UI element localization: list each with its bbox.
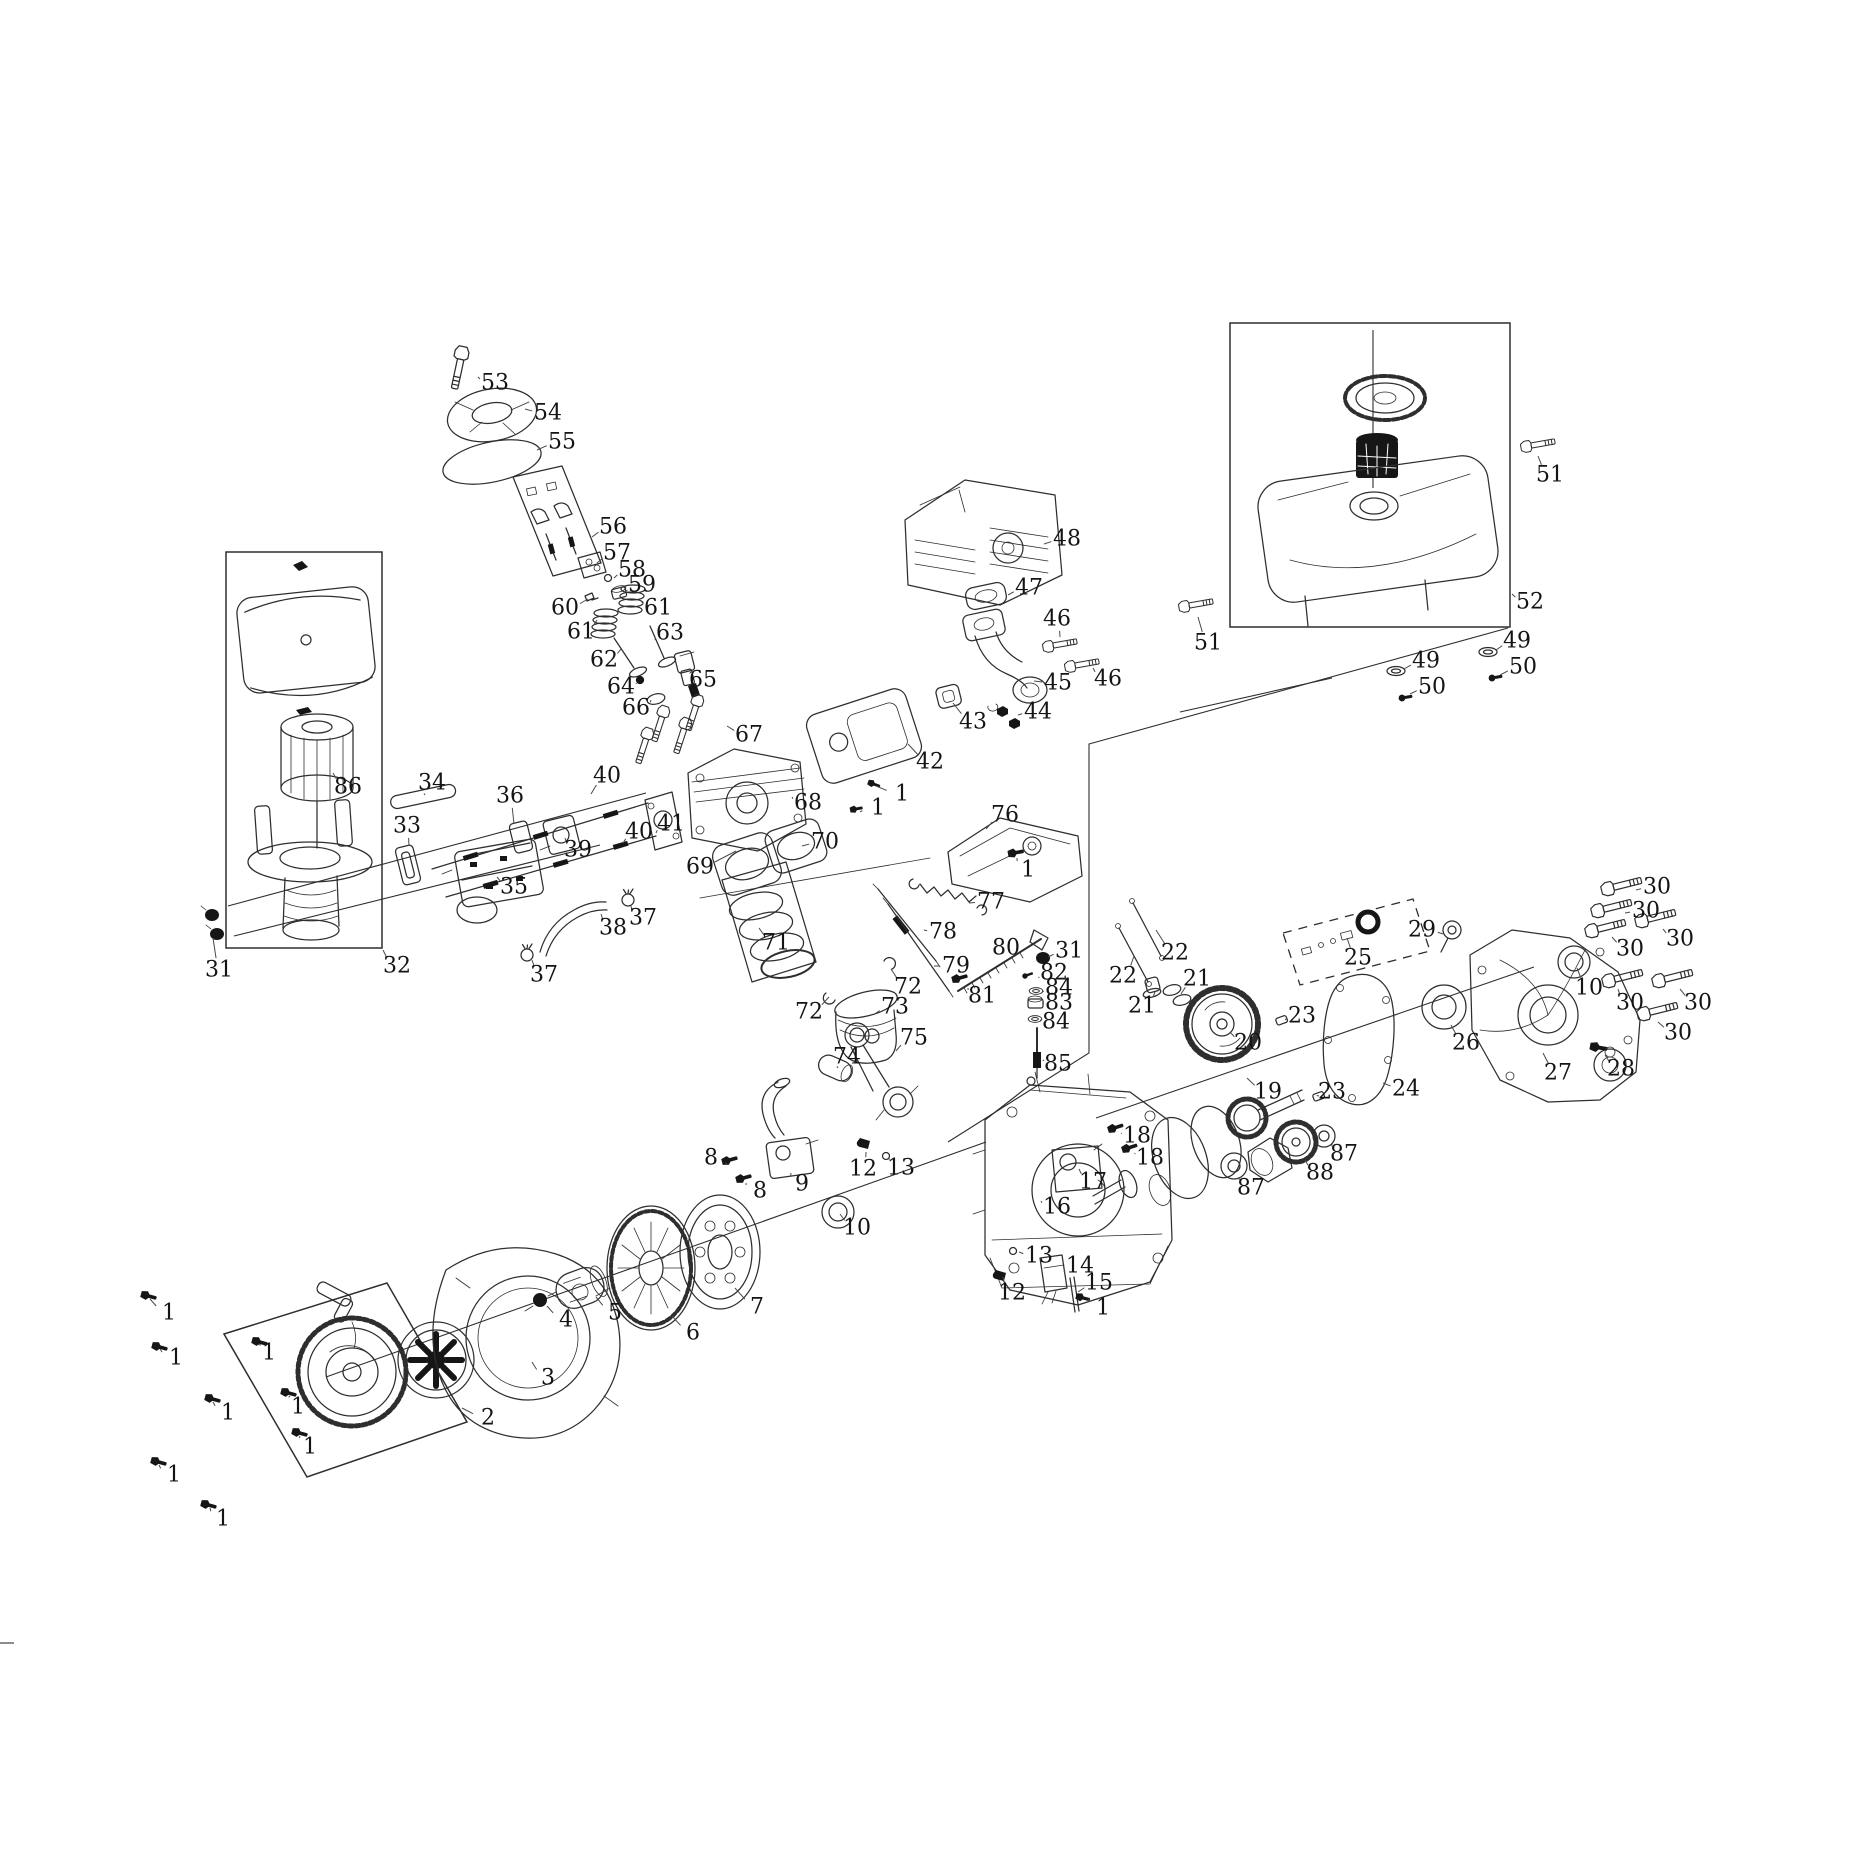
leader-line-70 xyxy=(802,844,809,846)
carb-gasket-33 xyxy=(395,844,422,885)
leader-line-66 xyxy=(650,700,651,702)
bolt-18 xyxy=(1107,1121,1125,1135)
screw-82 xyxy=(1022,971,1034,980)
part-number-33: 33 xyxy=(393,814,421,839)
leader-line-52 xyxy=(1512,594,1515,597)
part-number-7: 7 xyxy=(750,1295,764,1320)
leader-line-6 xyxy=(672,1316,681,1325)
bolt-1 xyxy=(204,1393,222,1406)
leader-line-1 xyxy=(159,1465,161,1468)
part-number-25: 25 xyxy=(1344,946,1372,971)
oil-dipstick-29 xyxy=(1441,921,1461,952)
part-number-31: 31 xyxy=(205,958,233,983)
part-number-13: 13 xyxy=(887,1156,915,1181)
part-number-1: 1 xyxy=(1096,1296,1110,1321)
carb-gasket-36 xyxy=(509,820,534,853)
part-number-75: 75 xyxy=(900,1026,928,1051)
part-number-10: 10 xyxy=(1575,976,1603,1001)
part-number-72: 72 xyxy=(795,1000,823,1025)
leader-line-44 xyxy=(1018,714,1022,715)
washer-84 xyxy=(1028,1016,1042,1023)
part-number-38: 38 xyxy=(599,916,627,941)
part-number-87: 87 xyxy=(1237,1176,1265,1201)
part-number-1: 1 xyxy=(169,1346,183,1371)
cover-bolt-30 xyxy=(1600,874,1643,897)
part-number-59: 59 xyxy=(628,573,656,598)
woodruff-key-23 xyxy=(1275,1015,1288,1025)
part-number-37: 37 xyxy=(530,963,558,988)
part-number-30: 30 xyxy=(1666,927,1694,952)
part-number-32: 32 xyxy=(383,954,411,979)
leader-line-18 xyxy=(1121,1133,1122,1134)
part-number-66: 66 xyxy=(622,696,650,721)
fuel-tank-52 xyxy=(1255,452,1502,626)
leader-line-30 xyxy=(1636,889,1641,890)
grommet-icon xyxy=(201,906,224,940)
bolt-1 xyxy=(849,804,863,813)
leader-line-56 xyxy=(592,532,599,537)
part-number-30: 30 xyxy=(1616,937,1644,962)
part-number-54: 54 xyxy=(534,401,562,426)
recoil-reel-2 xyxy=(298,1318,406,1426)
part-number-23: 23 xyxy=(1288,1004,1316,1029)
part-number-1: 1 xyxy=(871,796,885,821)
leader-line-23 xyxy=(1285,1019,1286,1020)
fuel-filter-screen xyxy=(1356,433,1398,478)
part-number-42: 42 xyxy=(916,750,944,775)
leader-line-69 xyxy=(715,851,736,862)
leader-line-49 xyxy=(1404,665,1411,669)
part-number-1: 1 xyxy=(262,1341,276,1366)
part-number-6: 6 xyxy=(686,1321,700,1346)
starter-clutch-4 xyxy=(525,1292,556,1311)
part-number-62: 62 xyxy=(590,648,618,673)
part-number-78: 78 xyxy=(929,920,957,945)
piston-pin-clip-72 xyxy=(884,958,895,969)
air-cleaner-base xyxy=(248,799,372,940)
part-number-39: 39 xyxy=(564,838,592,863)
part-number-47: 47 xyxy=(1015,576,1043,601)
leader-line-50 xyxy=(1410,691,1417,694)
part-number-1: 1 xyxy=(162,1301,176,1326)
part-number-87: 87 xyxy=(1330,1142,1358,1167)
part-number-49: 49 xyxy=(1503,629,1531,654)
tank-bolt-51 xyxy=(1520,436,1556,453)
leader-lines xyxy=(150,377,1685,1511)
part-number-22: 22 xyxy=(1109,964,1137,989)
part-number-48: 48 xyxy=(1053,527,1081,552)
part-number-1: 1 xyxy=(221,1401,235,1426)
part-number-84: 84 xyxy=(1042,1010,1070,1035)
bushing-83 xyxy=(1028,996,1043,1008)
fuel-tank-group xyxy=(1178,376,1556,702)
bolt-8 xyxy=(721,1154,739,1167)
leader-line-49 xyxy=(1496,646,1502,650)
part-number-53: 53 xyxy=(481,371,509,396)
exhaust-gasket-43 xyxy=(935,683,962,709)
cover-gasket-55 xyxy=(439,432,545,492)
part-number-8: 8 xyxy=(704,1146,718,1171)
part-number-77: 77 xyxy=(977,890,1005,915)
cover-bolt-30 xyxy=(1584,916,1627,939)
leader-line-30 xyxy=(1625,912,1630,913)
part-number-81: 81 xyxy=(968,984,996,1009)
part-number-12: 12 xyxy=(998,1281,1026,1306)
part-number-2: 2 xyxy=(481,1406,495,1431)
leader-line-78 xyxy=(924,930,927,931)
washer-84 xyxy=(1029,988,1043,995)
part-number-45: 45 xyxy=(1044,671,1072,696)
part-number-18: 18 xyxy=(1136,1146,1164,1171)
breather-hose-9 xyxy=(762,1077,818,1179)
part-number-76: 76 xyxy=(991,803,1019,828)
tank-washer-49 xyxy=(1479,648,1497,657)
leader-line-50 xyxy=(1500,671,1508,675)
leader-line-16 xyxy=(1041,1201,1042,1203)
part-number-74: 74 xyxy=(833,1045,861,1070)
part-number-27: 27 xyxy=(1544,1061,1572,1086)
oil-seal-10 xyxy=(1558,946,1590,978)
part-number-21: 21 xyxy=(1183,967,1211,992)
part-number-1: 1 xyxy=(1021,858,1035,883)
piston-pin-clip-72 xyxy=(823,993,835,1004)
fuel-cap xyxy=(1345,376,1425,420)
diagram-page: 5354555657585960616162636465666768697071… xyxy=(0,0,1875,1875)
part-number-24: 24 xyxy=(1392,1077,1420,1102)
part-number-40: 40 xyxy=(625,820,653,845)
tank-washer-49 xyxy=(1387,667,1405,676)
part-number-1: 1 xyxy=(216,1507,230,1532)
hose-clamp-37 xyxy=(521,944,533,961)
leader-line-1 xyxy=(210,1508,211,1511)
air-cleaner-assembly xyxy=(201,561,377,940)
part-number-30: 30 xyxy=(1616,991,1644,1016)
part-number-50: 50 xyxy=(1418,675,1446,700)
part-number-43: 43 xyxy=(959,710,987,735)
part-number-35: 35 xyxy=(500,875,528,900)
leader-line-54 xyxy=(525,409,532,411)
part-number-28: 28 xyxy=(1607,1057,1635,1082)
leader-line-1 xyxy=(213,1402,215,1406)
leader-line-29 xyxy=(1438,932,1443,934)
part-number-31: 31 xyxy=(1055,939,1083,964)
bolt-1 xyxy=(867,779,881,790)
flange-nuts-44 xyxy=(988,704,1020,729)
intake-valve-62 xyxy=(614,638,648,679)
hose-clamp-37 xyxy=(622,889,634,906)
part-number-41: 41 xyxy=(657,812,685,837)
part-number-30: 30 xyxy=(1632,899,1660,924)
leader-line-68 xyxy=(792,797,793,799)
leader-line-67 xyxy=(727,726,734,730)
exhaust-gasket-47 xyxy=(964,581,1008,611)
part-number-13: 13 xyxy=(1025,1244,1053,1269)
drain-fitting-12 xyxy=(993,1270,1006,1281)
part-number-69: 69 xyxy=(686,855,714,880)
part-number-10: 10 xyxy=(843,1216,871,1241)
bolt-1 xyxy=(151,1341,169,1354)
leader-line-1 xyxy=(299,1436,300,1438)
leader-line-1 xyxy=(876,786,887,790)
leader-line-15 xyxy=(1078,1288,1084,1292)
part-number-9: 9 xyxy=(795,1172,809,1197)
part-number-49: 49 xyxy=(1412,649,1440,674)
engine-exploded-diagram: 5354555657585960616162636465666768697071… xyxy=(0,0,1875,1875)
part-number-20: 20 xyxy=(1234,1031,1262,1056)
part-number-52: 52 xyxy=(1516,590,1544,615)
bolt-1 xyxy=(140,1290,158,1303)
leader-line-48 xyxy=(1044,542,1051,544)
tank-bolt-51 xyxy=(1178,596,1214,613)
part-number-30: 30 xyxy=(1664,1021,1692,1046)
leader-line-58 xyxy=(614,575,617,578)
part-number-63: 63 xyxy=(656,621,684,646)
part-number-30: 30 xyxy=(1684,991,1712,1016)
part-number-86: 86 xyxy=(334,775,362,800)
part-number-88: 88 xyxy=(1306,1161,1334,1186)
part-number-3: 3 xyxy=(541,1366,555,1391)
part-number-19: 19 xyxy=(1254,1080,1282,1105)
leader-line-3 xyxy=(532,1362,537,1370)
part-number-51: 51 xyxy=(1194,631,1222,656)
part-number-4: 4 xyxy=(559,1308,573,1333)
crank-cam-cover-group xyxy=(1093,874,1694,1208)
assembly-axis-lines xyxy=(0,330,1534,1643)
part-number-85: 85 xyxy=(1044,1052,1072,1077)
part-number-71: 71 xyxy=(762,931,790,956)
governor-control-group xyxy=(700,779,1082,1085)
bolt-1 xyxy=(150,1456,168,1469)
cover-bolt-30 xyxy=(1601,966,1644,989)
cover-bolt-30 xyxy=(1651,966,1694,989)
leader-line-1 xyxy=(150,1299,156,1306)
leader-line-53 xyxy=(478,377,480,379)
cover-bolt-30 xyxy=(1590,896,1633,919)
part-number-8: 8 xyxy=(753,1179,767,1204)
part-number-17: 17 xyxy=(1079,1170,1107,1195)
cover-bolt-53 xyxy=(447,345,470,390)
part-number-79: 79 xyxy=(942,954,970,979)
part-number-65: 65 xyxy=(689,668,717,693)
ball-58 xyxy=(605,575,612,582)
leader-line-31 xyxy=(213,938,216,958)
leader-line-1 xyxy=(289,1396,290,1397)
bolt-1 xyxy=(200,1499,218,1512)
pushrod-22 xyxy=(1130,899,1165,961)
part-number-68: 68 xyxy=(794,791,822,816)
part-number-55: 55 xyxy=(548,430,576,455)
part-number-61: 61 xyxy=(644,596,672,621)
screw-13 xyxy=(1010,1248,1017,1255)
part-number-37: 37 xyxy=(629,906,657,931)
muffler-45 xyxy=(962,608,1047,703)
part-number-50: 50 xyxy=(1509,655,1537,680)
part-number-56: 56 xyxy=(599,515,627,540)
carburetor-intake-group xyxy=(389,783,682,961)
valve-train-group xyxy=(439,345,918,1120)
part-number-44: 44 xyxy=(1024,700,1052,725)
part-number-1: 1 xyxy=(895,782,909,807)
part-number-21: 21 xyxy=(1128,994,1156,1019)
part-number-labels: 5354555657585960616162636465666768697071… xyxy=(162,371,1712,1532)
part-number-1: 1 xyxy=(167,1463,181,1488)
part-number-30: 30 xyxy=(1643,875,1671,900)
breather-fitting-12 xyxy=(857,1138,870,1149)
part-number-26: 26 xyxy=(1452,1031,1480,1056)
part-number-61: 61 xyxy=(567,620,595,645)
head-gasket-69 xyxy=(709,830,784,899)
leader-line-4 xyxy=(547,1306,553,1313)
leader-line-36 xyxy=(512,808,514,824)
ball-bearing-26 xyxy=(1422,985,1466,1029)
magneto-rotor-7 xyxy=(680,1195,760,1309)
part-number-22: 22 xyxy=(1161,941,1189,966)
part-number-1: 1 xyxy=(303,1435,317,1460)
part-number-84: 84 xyxy=(1045,976,1073,1001)
leader-line-47 xyxy=(1008,592,1014,595)
part-number-34: 34 xyxy=(418,771,446,796)
part-number-67: 67 xyxy=(735,723,763,748)
recoil-flywheel-group xyxy=(140,1195,760,1511)
part-number-12: 12 xyxy=(849,1157,877,1182)
part-number-23: 23 xyxy=(1318,1080,1346,1105)
heat-shield-42 xyxy=(803,686,924,787)
part-number-46: 46 xyxy=(1043,607,1071,632)
muffler-bolt-46 xyxy=(1042,636,1078,653)
part-number-40: 40 xyxy=(593,764,621,789)
air-cleaner-cover xyxy=(235,585,377,702)
starter-handle xyxy=(315,1280,355,1348)
part-number-16: 16 xyxy=(1043,1195,1071,1220)
bolt-8 xyxy=(735,1172,753,1185)
part-number-29: 29 xyxy=(1408,918,1436,943)
governor-shaft-85 xyxy=(1027,1028,1041,1085)
part-number-51: 51 xyxy=(1536,463,1564,488)
part-number-36: 36 xyxy=(496,784,524,809)
part-number-73: 73 xyxy=(881,995,909,1020)
part-number-60: 60 xyxy=(551,596,579,621)
part-number-46: 46 xyxy=(1094,667,1122,692)
leader-line-45 xyxy=(1034,681,1042,682)
part-number-70: 70 xyxy=(811,830,839,855)
leader-line-13 xyxy=(1019,1252,1023,1254)
leader-line-2 xyxy=(462,1408,473,1414)
governor-spring-77 xyxy=(909,879,986,915)
wing-nut-icon xyxy=(293,561,308,571)
part-number-5: 5 xyxy=(608,1301,622,1326)
part-number-80: 80 xyxy=(992,936,1020,961)
recoil-starter-group-box xyxy=(224,1283,467,1477)
leader-line-1 xyxy=(860,811,862,812)
part-number-15: 15 xyxy=(1085,1271,1113,1296)
part-number-1: 1 xyxy=(291,1395,305,1420)
